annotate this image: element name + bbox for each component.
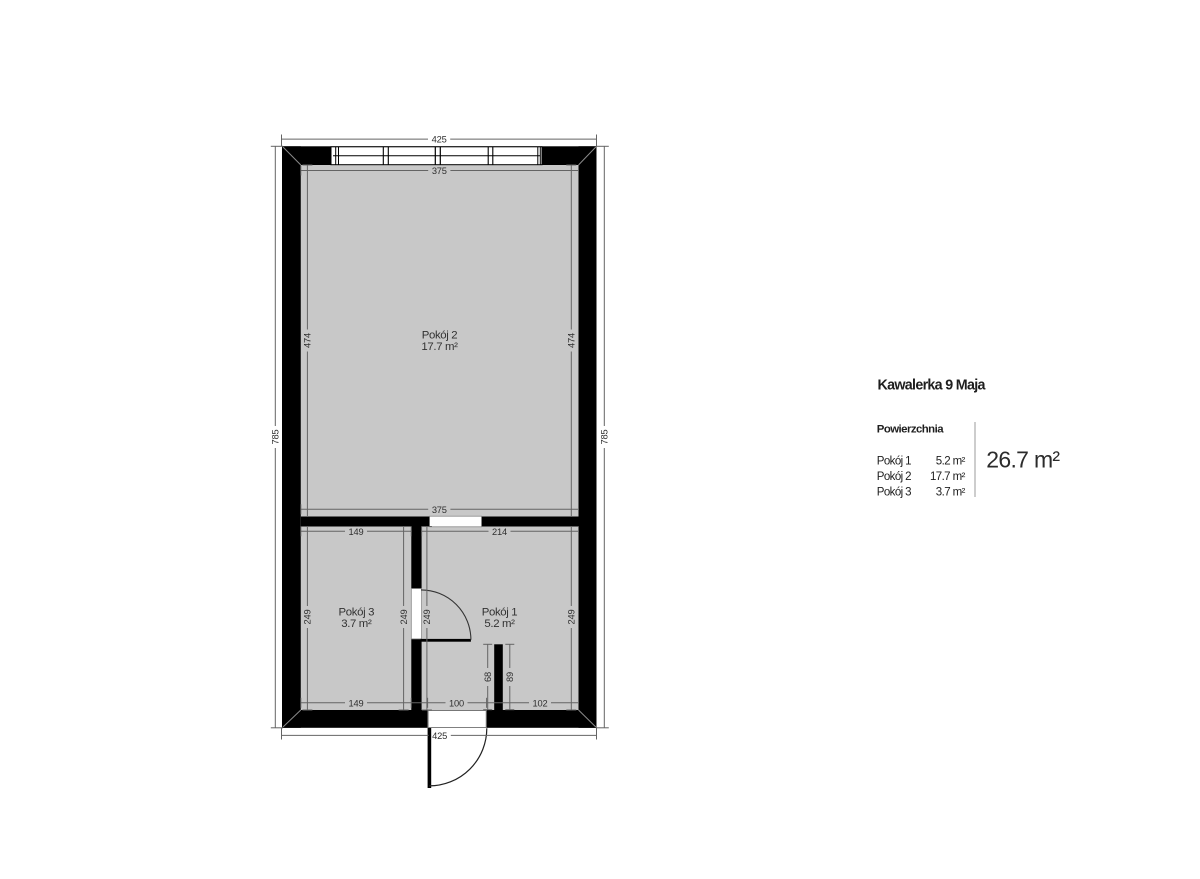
svg-text:249: 249 — [399, 610, 409, 625]
svg-text:Kawalerka 9 Maja: Kawalerka 9 Maja — [878, 377, 987, 393]
svg-text:89: 89 — [505, 672, 515, 682]
svg-text:425: 425 — [432, 135, 447, 145]
svg-text:249: 249 — [567, 610, 577, 625]
svg-text:Pokój 1: Pokój 1 — [877, 455, 911, 467]
svg-text:Pokój 3: Pokój 3 — [877, 487, 911, 499]
svg-text:214: 214 — [492, 527, 507, 537]
svg-text:17.7 m²: 17.7 m² — [930, 471, 966, 483]
svg-text:375: 375 — [432, 505, 447, 515]
svg-text:26.7 m²: 26.7 m² — [986, 447, 1060, 473]
svg-text:5.2 m²: 5.2 m² — [484, 618, 515, 630]
svg-text:Pokój 2: Pokój 2 — [422, 330, 458, 342]
svg-text:Pokój 1: Pokój 1 — [482, 607, 518, 619]
svg-text:375: 375 — [432, 166, 447, 176]
svg-text:102: 102 — [533, 698, 548, 708]
svg-text:785: 785 — [271, 430, 281, 445]
svg-text:3.7 m²: 3.7 m² — [936, 487, 966, 499]
svg-text:Pokój 3: Pokój 3 — [339, 607, 375, 619]
svg-text:5.2 m²: 5.2 m² — [936, 455, 966, 467]
svg-text:149: 149 — [349, 698, 364, 708]
svg-text:249: 249 — [303, 610, 313, 625]
svg-text:785: 785 — [600, 430, 610, 445]
svg-text:474: 474 — [567, 333, 577, 348]
svg-text:Pokój 2: Pokój 2 — [877, 471, 911, 483]
svg-text:100: 100 — [449, 698, 464, 708]
svg-text:249: 249 — [422, 610, 432, 625]
svg-text:3.7 m²: 3.7 m² — [341, 618, 372, 630]
svg-text:474: 474 — [303, 333, 313, 348]
svg-text:425: 425 — [432, 731, 447, 741]
svg-text:Powierzchnia: Powierzchnia — [877, 424, 944, 436]
svg-text:149: 149 — [349, 527, 364, 537]
svg-text:68: 68 — [483, 672, 493, 682]
svg-text:17.7 m²: 17.7 m² — [421, 341, 458, 353]
